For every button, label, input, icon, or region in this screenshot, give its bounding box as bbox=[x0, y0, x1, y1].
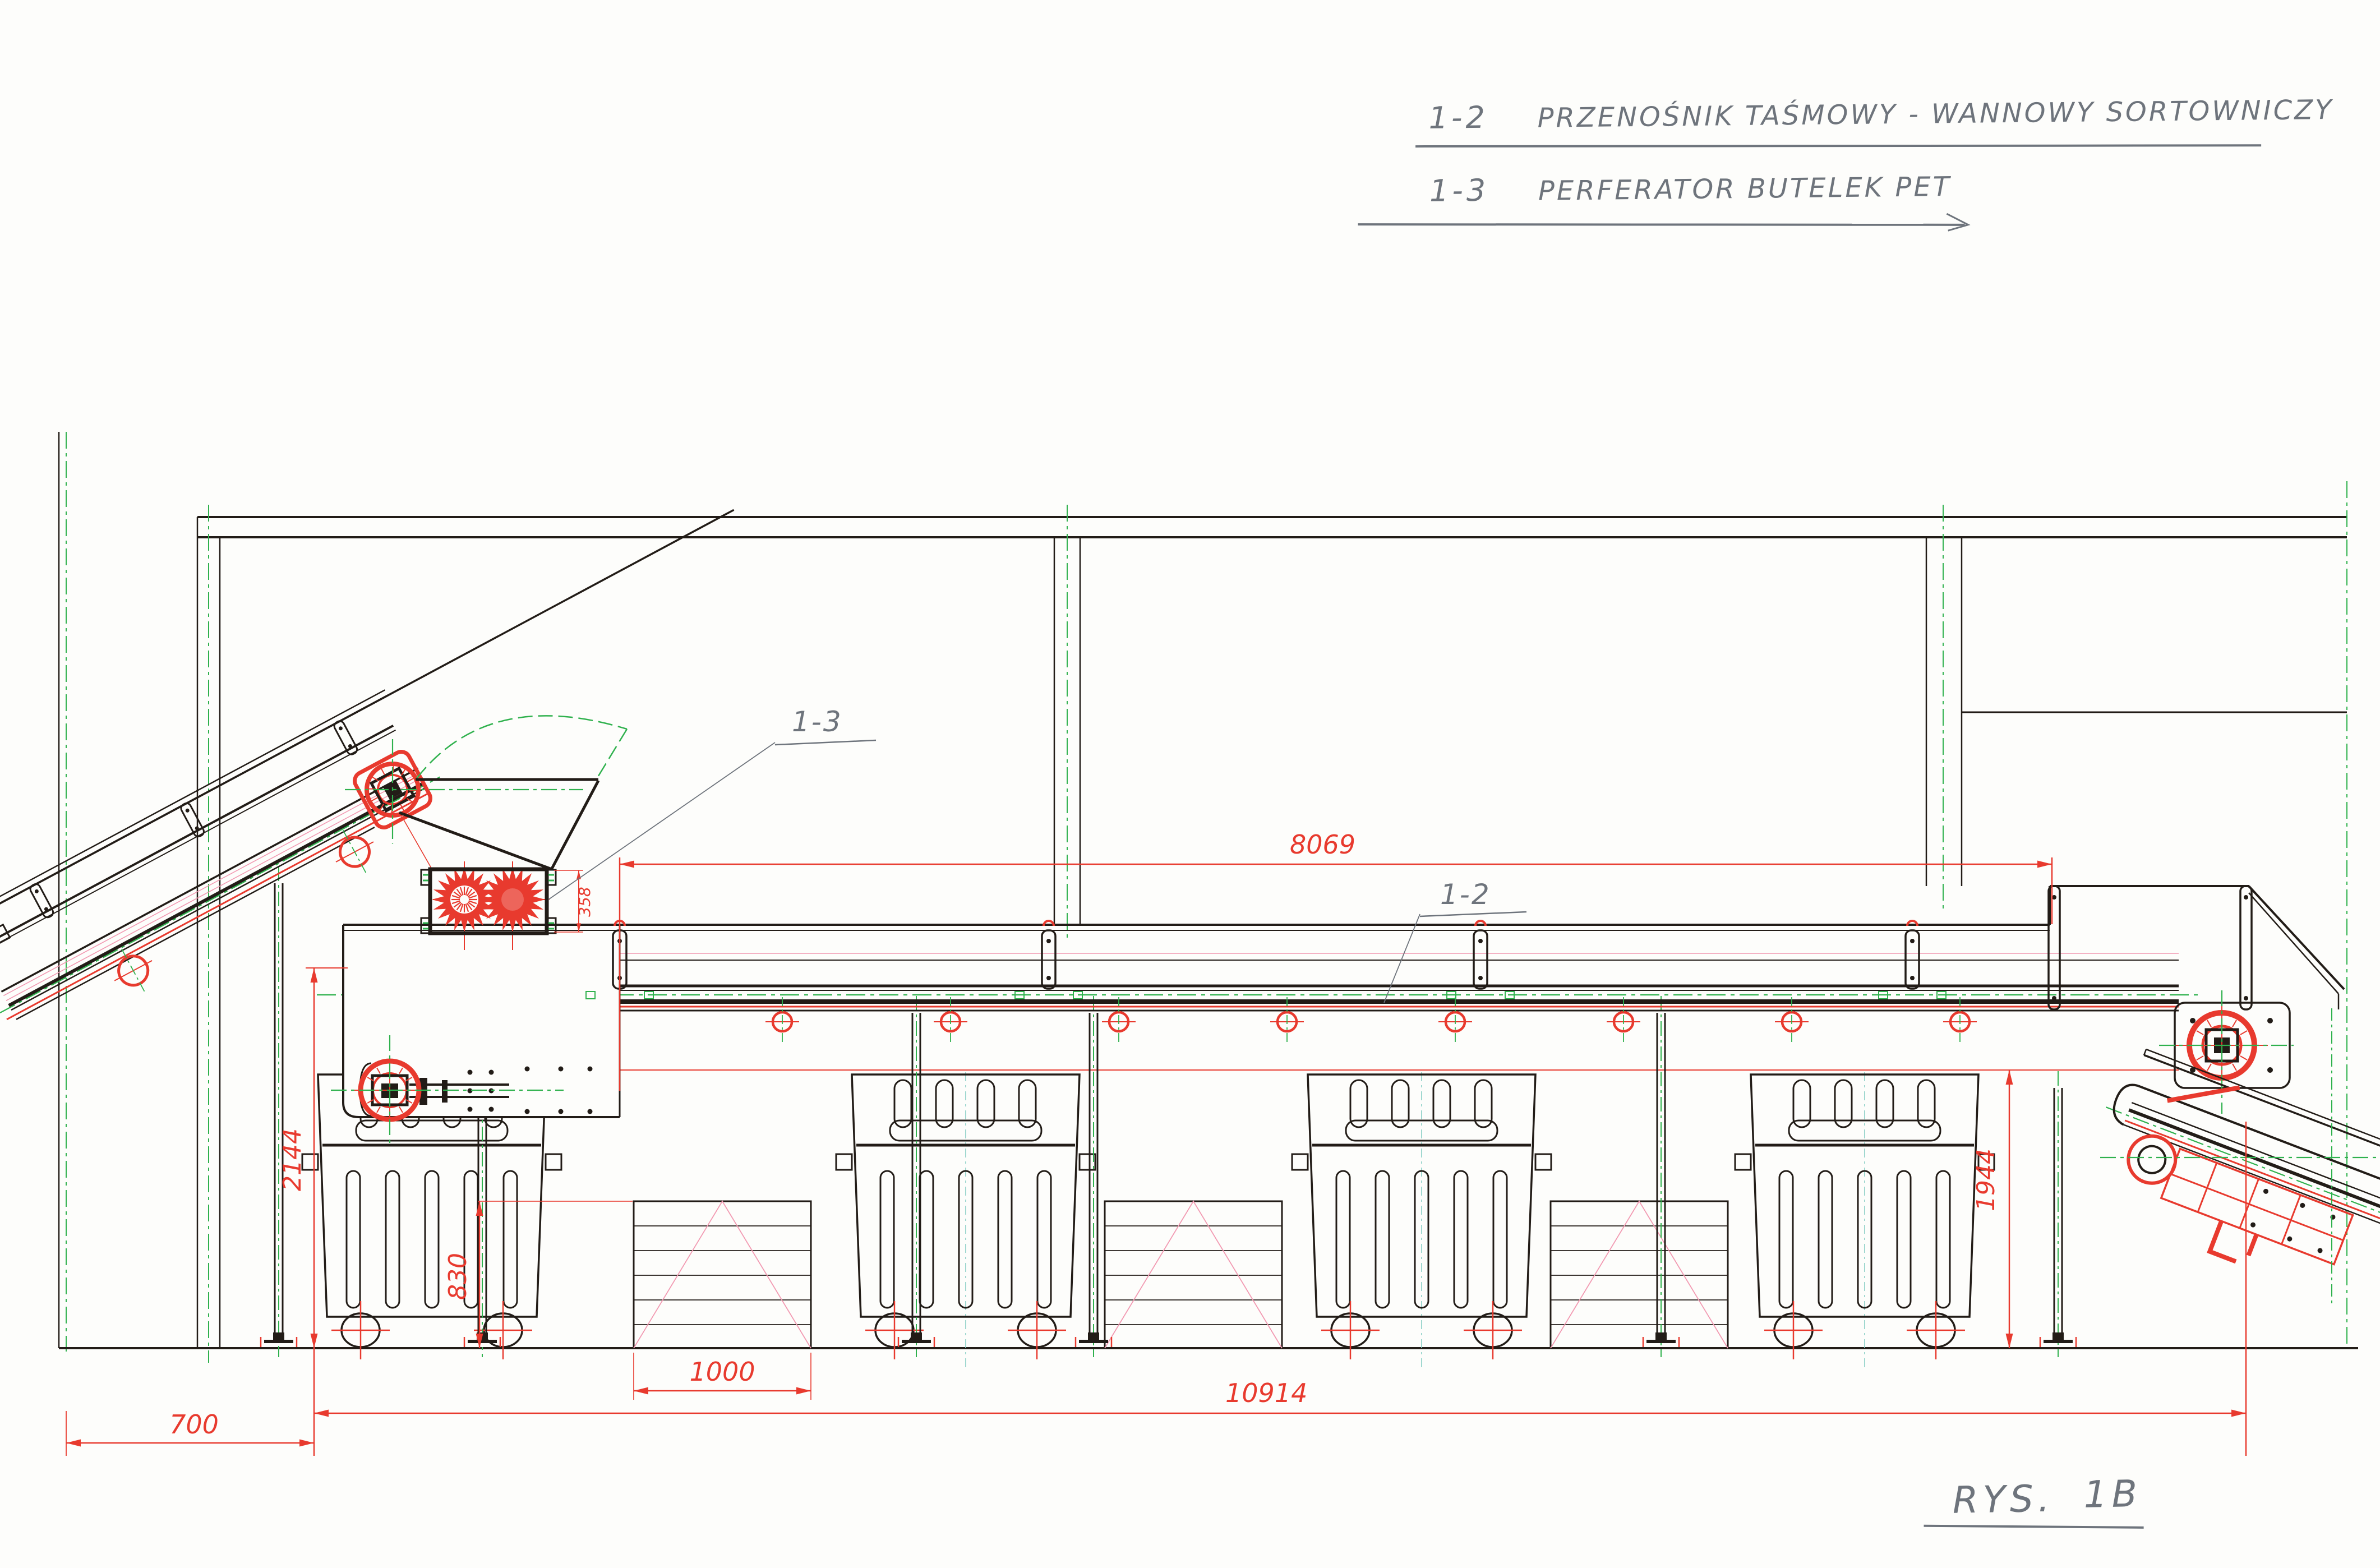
figure-underline bbox=[1924, 1522, 2143, 1532]
callout-perforator-label: 1-3 bbox=[792, 705, 843, 738]
callout-main-conveyor-label: 1-2 bbox=[1440, 878, 1491, 911]
funnel-left-wall bbox=[399, 813, 552, 869]
pallet-stack bbox=[634, 1201, 811, 1348]
dim-text-1000: 1000 bbox=[689, 1357, 755, 1387]
return-roller bbox=[1102, 997, 1136, 1045]
figure-prefix: RYS. bbox=[1952, 1477, 2054, 1522]
perforator-star-cutters bbox=[432, 867, 545, 932]
support-leg bbox=[2040, 1071, 2076, 1357]
support-leg bbox=[464, 1101, 500, 1357]
dim-perforator-height: 358 bbox=[554, 870, 594, 932]
pallet-stacks bbox=[634, 1201, 1728, 1348]
callout-1-3: 1-3 bbox=[548, 705, 876, 900]
dim-wall-clearance: 700 bbox=[66, 1409, 314, 1456]
legend-underline-2 bbox=[1358, 218, 1965, 231]
rail-post bbox=[1474, 921, 1487, 989]
dim-text-830: 830 bbox=[444, 1253, 472, 1300]
support-leg bbox=[898, 996, 934, 1357]
callout-1-2: 1-2 bbox=[1384, 878, 1526, 1003]
dim-text-2144: 2144 bbox=[278, 1128, 307, 1191]
dim-pallet-width: 1000 bbox=[634, 1353, 811, 1400]
building-structure bbox=[59, 432, 2358, 1363]
discharge-conveyor bbox=[2071, 1008, 2380, 1313]
dim-total-length: 10914 bbox=[314, 1122, 2246, 1456]
main-sorting-conveyor bbox=[317, 886, 2344, 1145]
return-roller bbox=[1775, 997, 1809, 1045]
dim-text-1944: 1944 bbox=[1972, 1149, 2000, 1211]
legend-item-2-label: PERFERATOR BUTELEK PET bbox=[1538, 171, 1952, 207]
legend-underline-arrow bbox=[1947, 214, 1968, 230]
return-roller bbox=[1943, 997, 1977, 1045]
legend-item-1-label: PRZENOŚNIK TAŚMOWY - WANNOWY SORTOWNICZY bbox=[1537, 94, 2334, 134]
dim-text-700: 700 bbox=[169, 1409, 219, 1440]
belt-return-rollers bbox=[765, 997, 1977, 1045]
dim-text-358: 358 bbox=[575, 887, 594, 916]
pallet-stack bbox=[1551, 1201, 1728, 1348]
rail-post bbox=[1906, 921, 1919, 989]
return-roller bbox=[1607, 997, 1640, 1045]
dim-text-10914: 10914 bbox=[1225, 1378, 1307, 1408]
rail-post bbox=[1042, 921, 1055, 989]
dim-text-8069: 8069 bbox=[1290, 829, 1355, 860]
return-roller bbox=[1270, 997, 1304, 1045]
tipping-arc bbox=[417, 716, 627, 778]
dim-belt-height-left: 2144 bbox=[278, 968, 348, 1456]
funnel-right-wall bbox=[552, 781, 598, 869]
legend-item-2-code: 1-3 bbox=[1429, 173, 1489, 209]
figure-number: 1B bbox=[2083, 1472, 2142, 1516]
dimensions: 8069 2144 830 1000 10914 bbox=[66, 829, 2246, 1456]
support-leg bbox=[1076, 996, 1111, 1357]
return-roller bbox=[765, 997, 799, 1045]
return-roller bbox=[1438, 997, 1472, 1045]
support-leg bbox=[1643, 996, 1679, 1357]
figure-label: RYS. 1B bbox=[1923, 1472, 2144, 1532]
return-roller bbox=[934, 997, 967, 1045]
legend-underline-1 bbox=[1415, 137, 2261, 154]
pallet-stack bbox=[1105, 1201, 1282, 1348]
legend-item-1-code: 1-2 bbox=[1428, 100, 1488, 136]
technical-drawing-canvas: 8069 2144 830 1000 10914 bbox=[0, 0, 2380, 1568]
support-leg bbox=[261, 866, 297, 1357]
hopper-post bbox=[2240, 886, 2252, 1009]
conveyor-tail-station bbox=[331, 925, 620, 1145]
legend: 1-2 PRZENOŚNIK TAŚMOWY - WANNOWY SORTOWN… bbox=[1357, 91, 2335, 237]
head-drive-station bbox=[2159, 990, 2294, 1114]
